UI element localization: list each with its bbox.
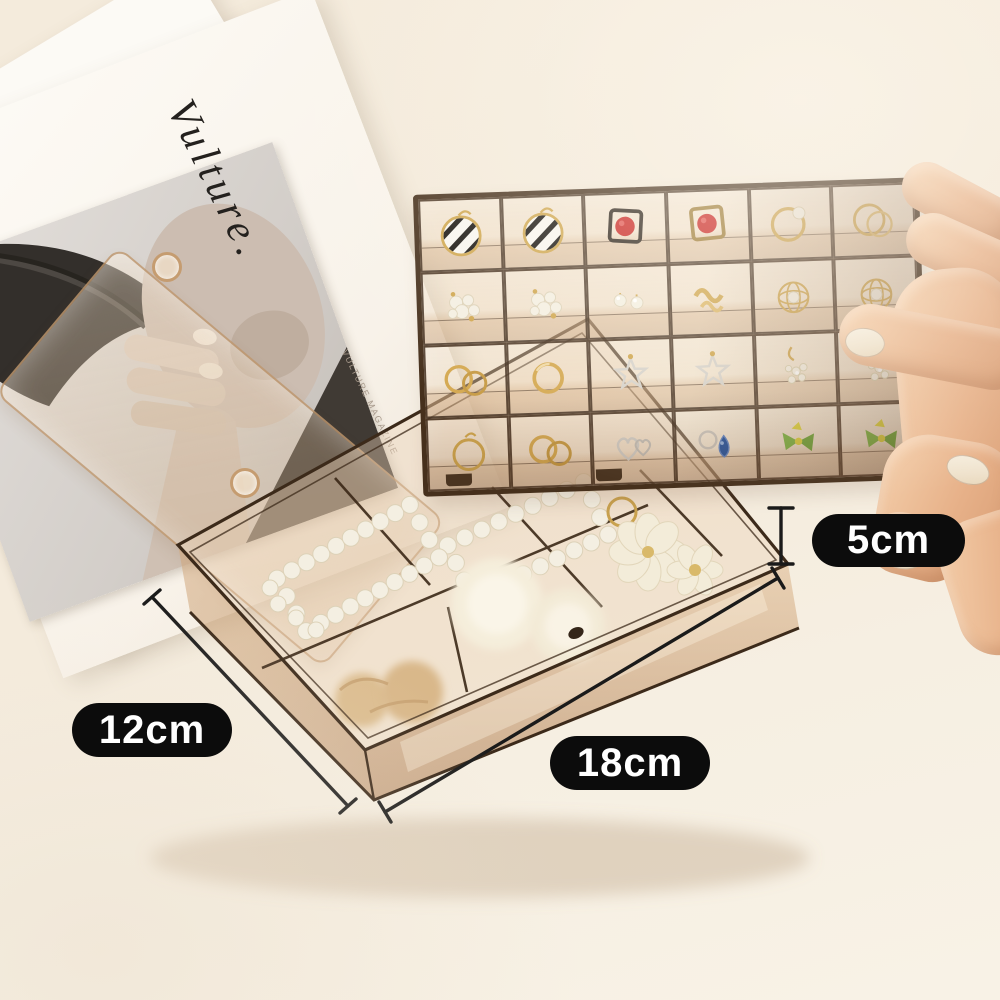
fur-pom-poms (451, 558, 605, 663)
tray-foot (596, 469, 622, 482)
lid-hinge-knob (230, 468, 260, 498)
tray-cell-r2c4-gold-knot (668, 261, 753, 337)
tray-cell-r2c1-pearl-cluster (421, 270, 506, 346)
tray-foot (446, 474, 472, 487)
tray-cell-r4c2-gold-rings (508, 413, 593, 489)
tan-scrunchie (335, 661, 443, 727)
depth-label: 12cm (72, 703, 232, 757)
tray-cell-r4c5-green-bow (756, 404, 841, 480)
tray-cell-r1c5-hoop-pearl (749, 185, 834, 261)
product-photo-scene: Vulture. VULTURE MAGAZINE (0, 0, 1000, 1000)
tray-cell-r3c5-crystal-dangle (754, 331, 839, 407)
tray-cell-r4c4-blue-gem (674, 407, 759, 483)
tray-cell-r3c1-gold-rings (423, 343, 508, 419)
tray-cell-r3c3-silver-star (588, 337, 673, 413)
lid-hinge-knob (152, 252, 182, 282)
box-front-knob (566, 625, 585, 642)
tray-cell-r2c3-pearl-stud (586, 264, 671, 340)
tray-cell-r2c5-wire-ball (751, 258, 836, 334)
tray-cell-r1c2-striped-hoop (501, 194, 586, 270)
box-shadow (150, 818, 810, 898)
width-label: 18cm (550, 736, 710, 790)
tray-cell-r1c1-striped-hoop (418, 197, 503, 273)
pearl-flower-hair-tie (608, 498, 723, 599)
tray-cell-r2c2-pearl-cluster (503, 267, 588, 343)
height-label: 5cm (812, 514, 965, 567)
tray-cell-r3c2-gold-ring (506, 340, 591, 416)
tray-cell-r3c4-silver-star (671, 334, 756, 410)
tray-cell-r1c4-red-square-gold (666, 188, 751, 264)
tray-cell-r1c3-red-square (583, 191, 668, 267)
